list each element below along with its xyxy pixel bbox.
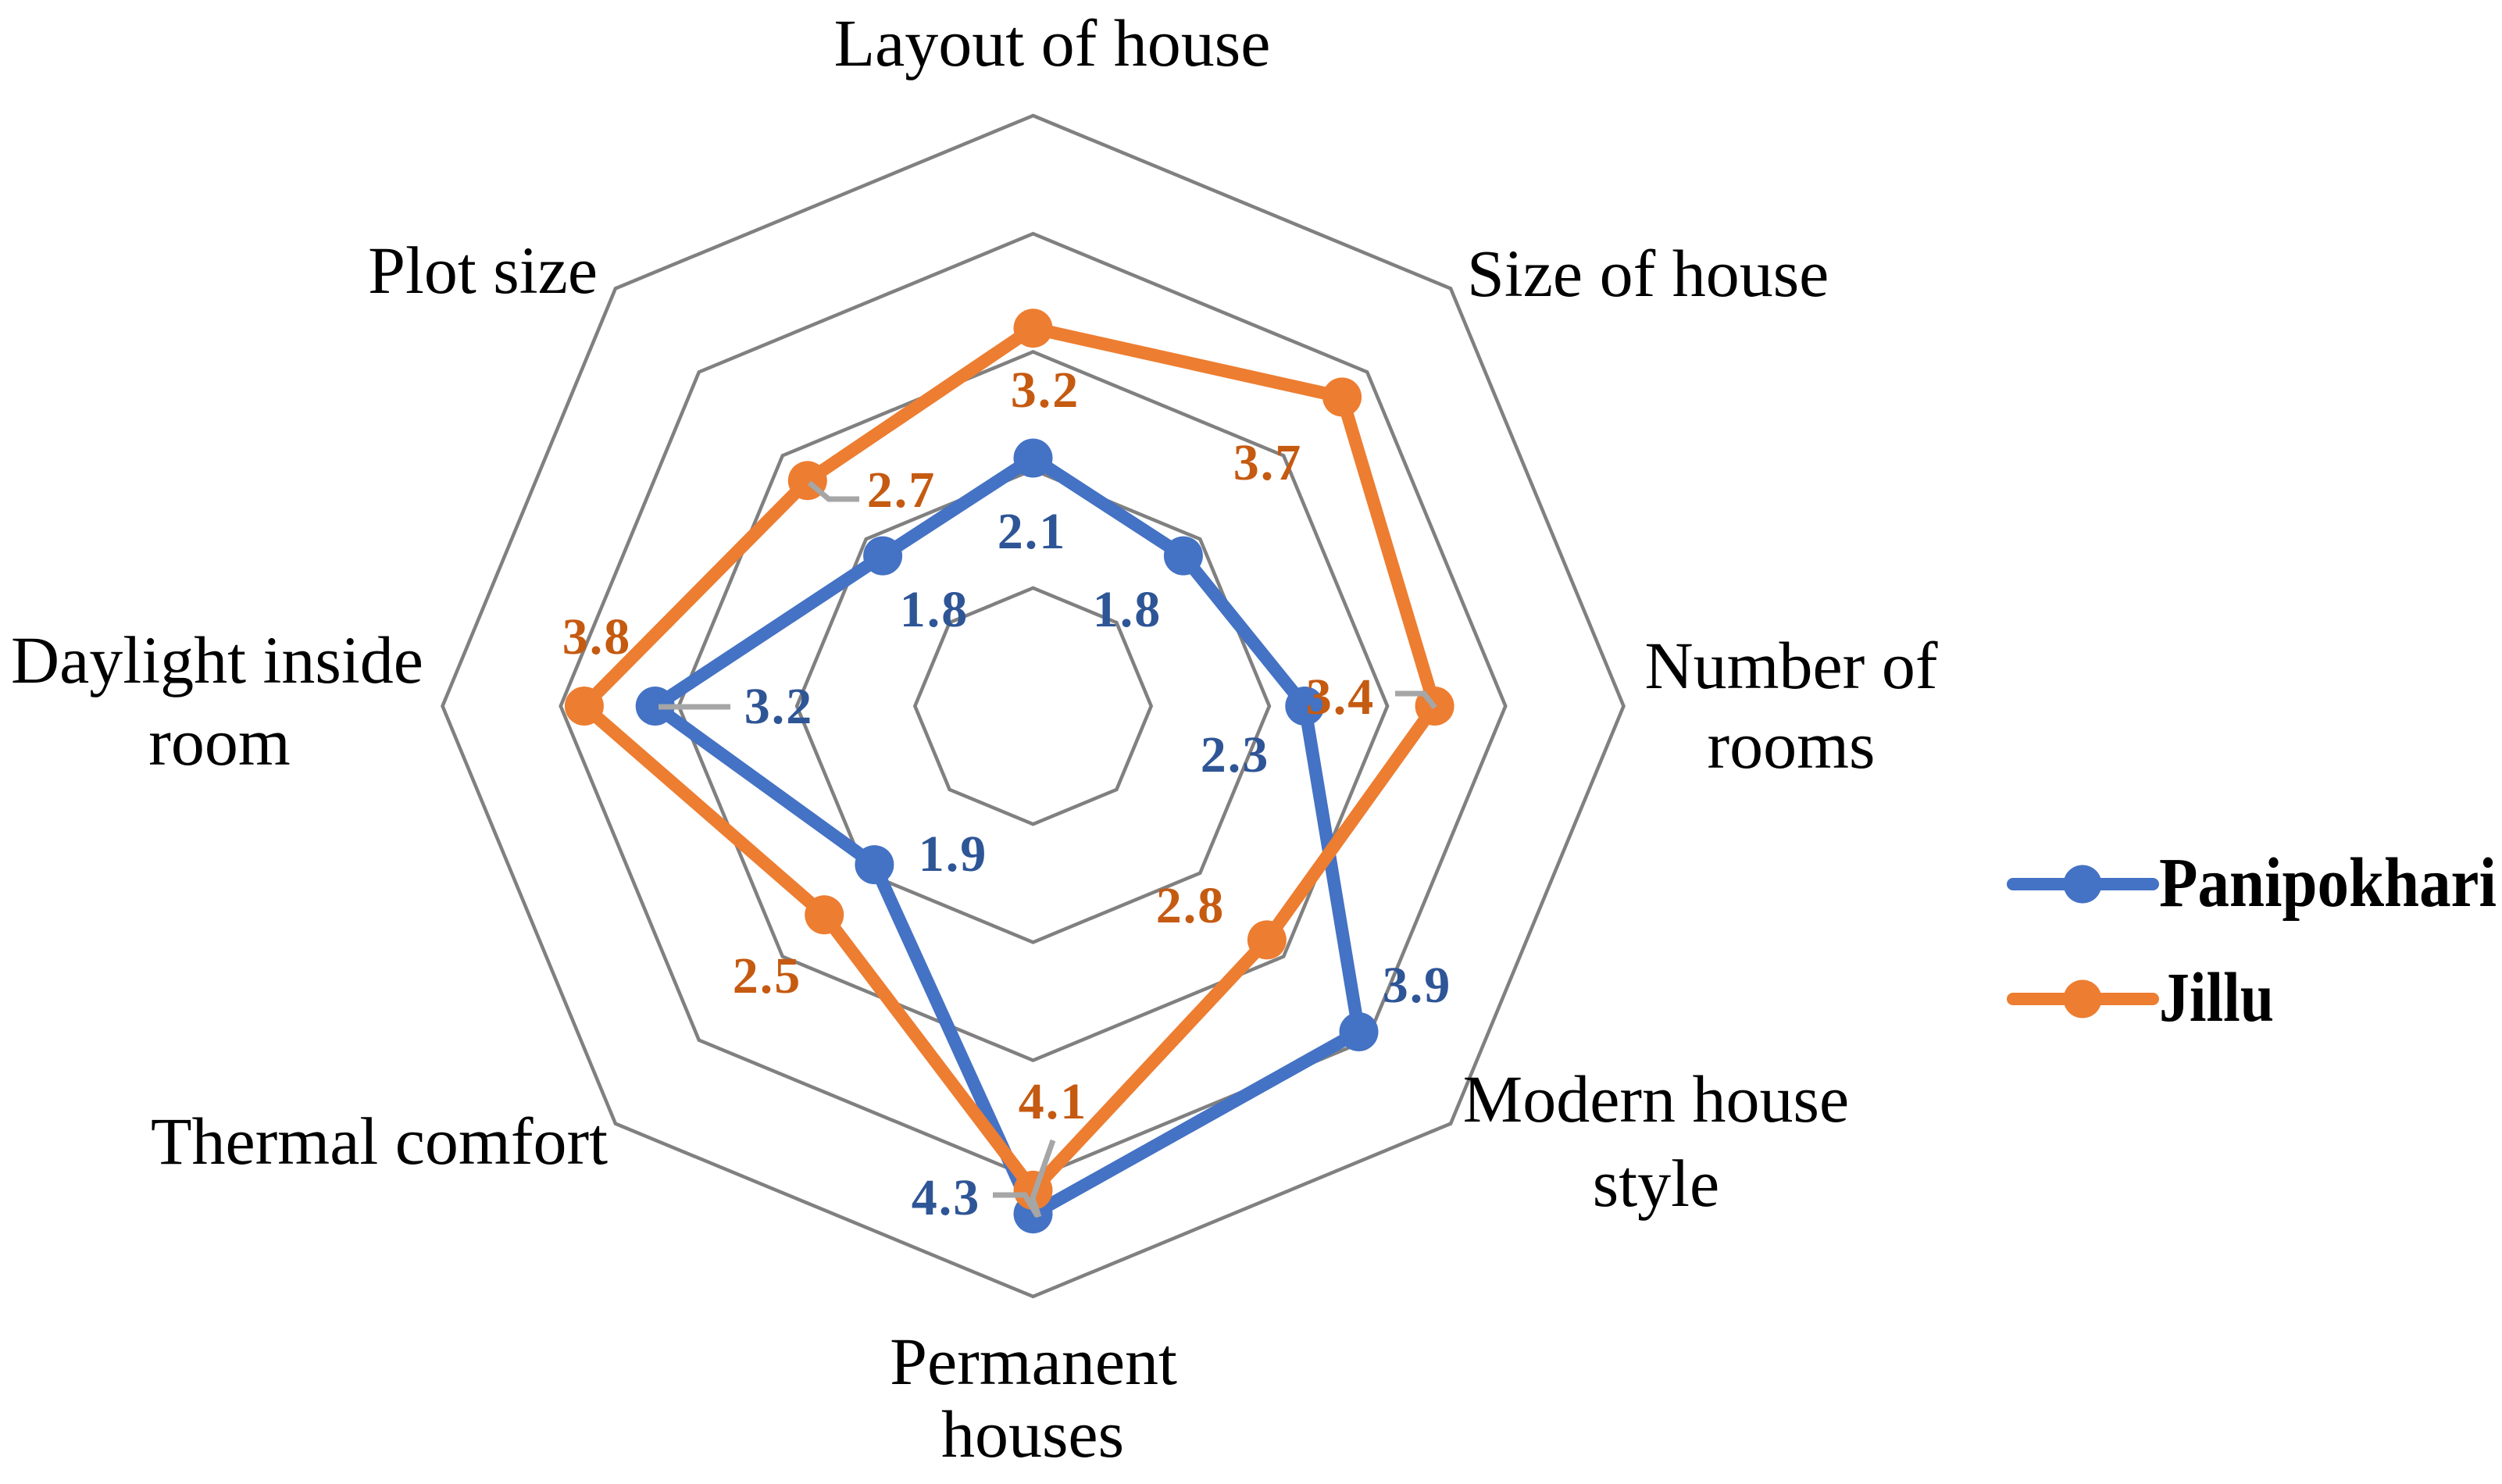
svg-text:Thermal comfort: Thermal comfort — [151, 1104, 608, 1179]
svg-text:Permanent: Permanent — [890, 1324, 1177, 1399]
svg-text:1.8: 1.8 — [1093, 581, 1162, 638]
svg-text:style: style — [1593, 1146, 1719, 1221]
svg-text:room: room — [148, 705, 291, 779]
svg-text:1.9: 1.9 — [919, 826, 988, 883]
svg-text:Plot size: Plot size — [368, 233, 598, 308]
svg-text:1.8: 1.8 — [900, 581, 969, 638]
svg-text:rooms: rooms — [1708, 708, 1876, 783]
svg-text:2.1: 2.1 — [998, 503, 1067, 560]
svg-text:Panipokhari: Panipokhari — [2159, 844, 2497, 922]
svg-text:Daylight inside: Daylight inside — [11, 622, 423, 697]
svg-text:3.2: 3.2 — [744, 678, 814, 735]
svg-text:3.9: 3.9 — [1383, 957, 1452, 1014]
svg-text:Number of: Number of — [1645, 628, 1938, 703]
svg-text:3.8: 3.8 — [562, 608, 632, 665]
svg-text:3.4: 3.4 — [1306, 669, 1376, 726]
svg-text:Layout of house: Layout of house — [834, 5, 1271, 80]
svg-text:houses: houses — [941, 1397, 1124, 1472]
svg-text:2.7: 2.7 — [867, 462, 937, 519]
svg-text:Modern house: Modern house — [1463, 1061, 1849, 1136]
svg-text:Size of house: Size of house — [1467, 236, 1829, 311]
svg-text:Jillu: Jillu — [2159, 959, 2274, 1036]
svg-text:2.3: 2.3 — [1201, 726, 1270, 783]
svg-text:2.8: 2.8 — [1156, 877, 1226, 934]
svg-text:4.1: 4.1 — [1019, 1073, 1088, 1130]
svg-text:2.5: 2.5 — [733, 947, 802, 1004]
svg-text:4.3: 4.3 — [912, 1169, 981, 1226]
svg-text:3.2: 3.2 — [1011, 362, 1080, 419]
svg-text:3.7: 3.7 — [1233, 434, 1303, 491]
